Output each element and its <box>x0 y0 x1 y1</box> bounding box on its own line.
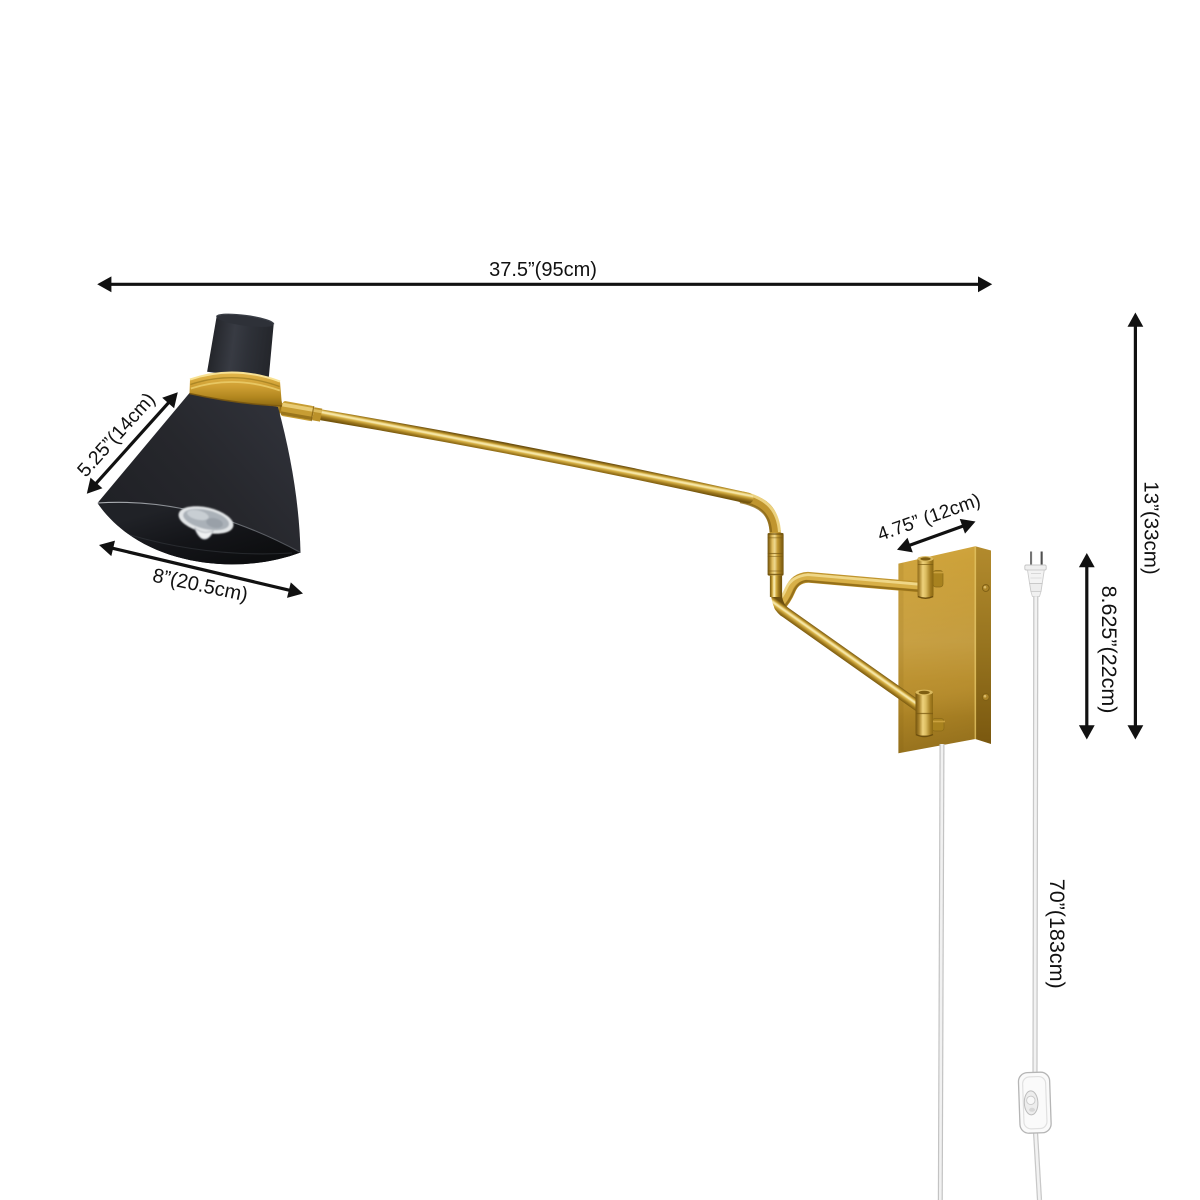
svg-text:8.625”(22cm): 8.625”(22cm) <box>1097 586 1121 714</box>
svg-text:37.5”(95cm): 37.5”(95cm) <box>489 259 597 281</box>
svg-text:13”(33cm): 13”(33cm) <box>1140 481 1163 574</box>
svg-text:70”(183cm): 70”(183cm) <box>1045 879 1069 989</box>
